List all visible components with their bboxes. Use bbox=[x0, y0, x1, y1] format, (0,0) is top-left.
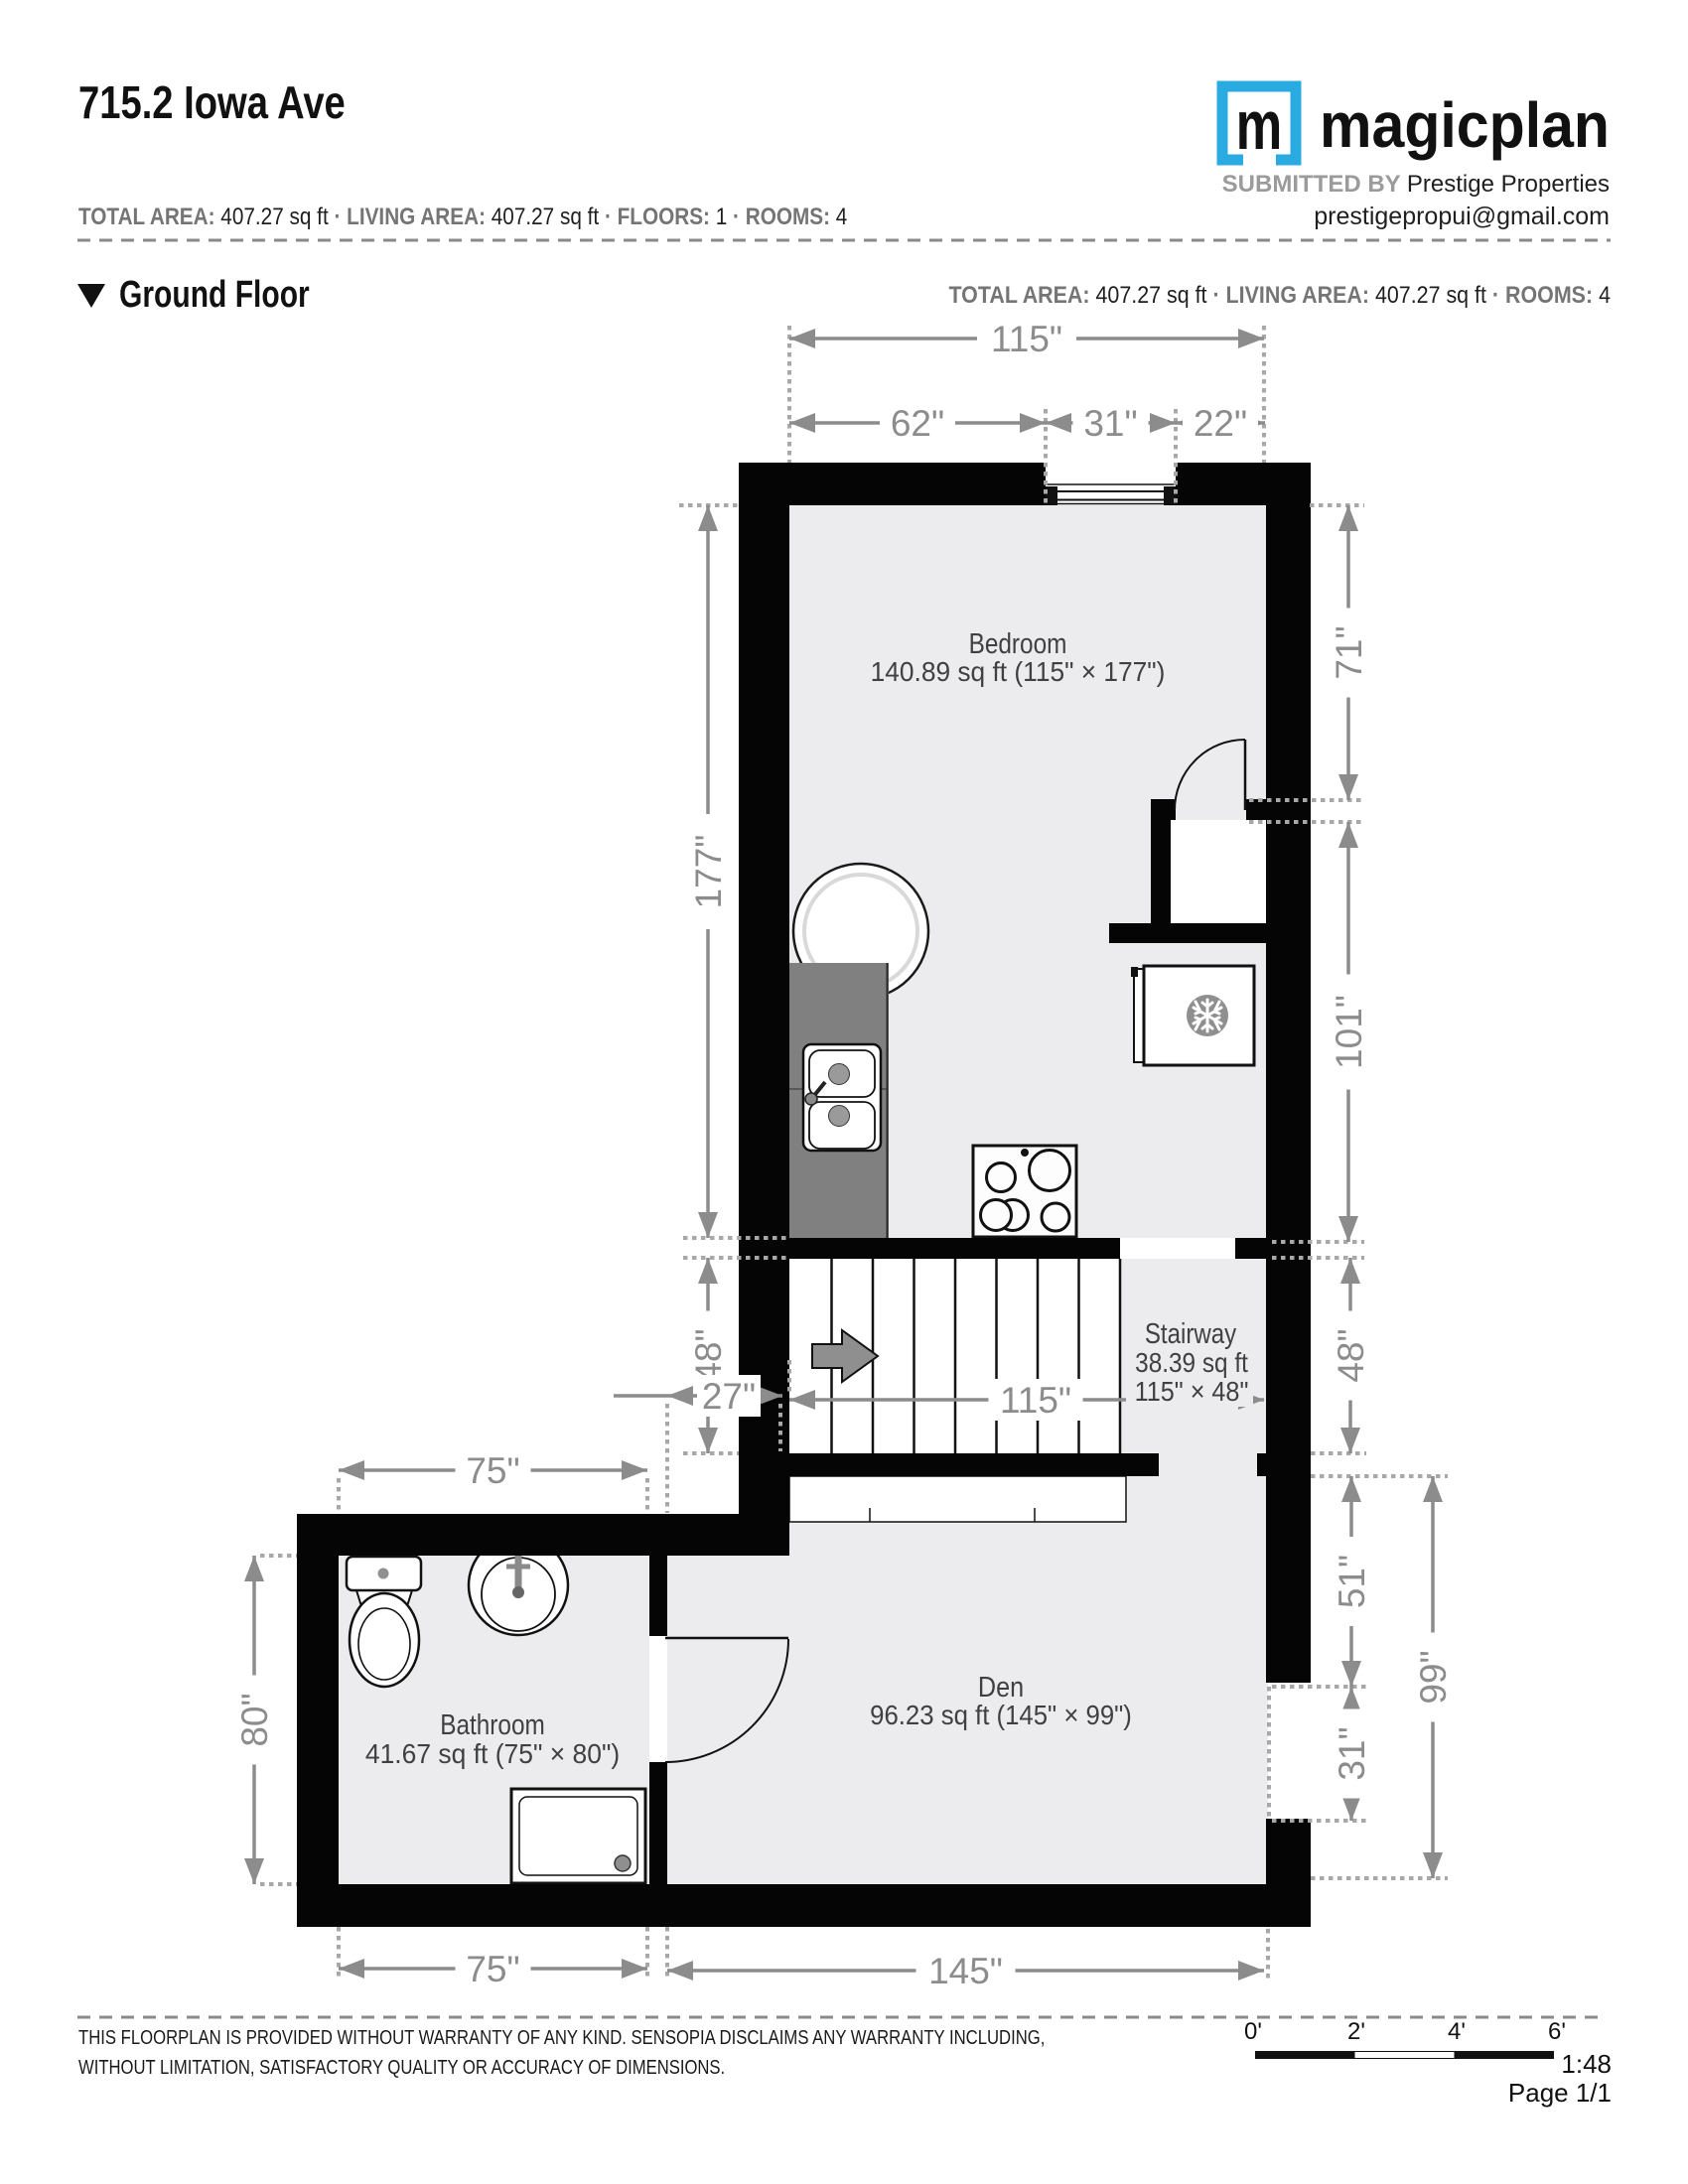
svg-text:115" × 48": 115" × 48" bbox=[1135, 1376, 1249, 1408]
svg-text:96.23 sq ft (145" × 99"): 96.23 sq ft (145" × 99") bbox=[870, 1700, 1132, 1730]
svg-text:Bathroom: Bathroom bbox=[440, 1708, 545, 1740]
svg-text:115": 115" bbox=[991, 319, 1062, 359]
svg-text:Stairway: Stairway bbox=[1145, 1317, 1237, 1350]
svg-text:27": 27" bbox=[702, 1376, 756, 1417]
svg-text:Ground Floor: Ground Floor bbox=[119, 274, 310, 316]
svg-text:177": 177" bbox=[688, 835, 729, 909]
svg-text:38.39 sq ft: 38.39 sq ft bbox=[1135, 1346, 1248, 1378]
svg-text:31": 31" bbox=[1083, 403, 1137, 444]
svg-text:31": 31" bbox=[1332, 1726, 1372, 1780]
svg-text:80": 80" bbox=[234, 1693, 275, 1746]
svg-text:THIS FLOORPLAN IS PROVIDED WIT: THIS FLOORPLAN IS PROVIDED WITHOUT WARRA… bbox=[78, 2026, 1045, 2049]
svg-text:prestigepropui@gmail.com: prestigepropui@gmail.com bbox=[1314, 203, 1610, 230]
svg-text:TOTAL AREA: 407.27 sq ft · LIV: TOTAL AREA: 407.27 sq ft · LIVING AREA: … bbox=[948, 281, 1611, 308]
svg-text:62": 62" bbox=[891, 403, 944, 444]
svg-text:4': 4' bbox=[1448, 2018, 1466, 2045]
svg-text:75": 75" bbox=[466, 1949, 519, 1989]
svg-text:6': 6' bbox=[1548, 2018, 1566, 2045]
svg-text:75": 75" bbox=[466, 1450, 519, 1491]
svg-text:Page 1/1: Page 1/1 bbox=[1508, 2078, 1612, 2108]
svg-text:145": 145" bbox=[928, 1951, 1003, 1991]
svg-text:magicplan: magicplan bbox=[1320, 89, 1610, 161]
svg-text:99": 99" bbox=[1413, 1650, 1454, 1704]
svg-text:2': 2' bbox=[1347, 2018, 1365, 2045]
svg-text:WITHOUT LIMITATION, SATISFACTO: WITHOUT LIMITATION, SATISFACTORY QUALITY… bbox=[78, 2056, 725, 2079]
svg-text:SUBMITTED BY Prestige Properti: SUBMITTED BY Prestige Properties bbox=[1222, 171, 1610, 198]
svg-text:715.2 Iowa Ave: 715.2 Iowa Ave bbox=[78, 77, 346, 128]
svg-text:0': 0' bbox=[1244, 2018, 1262, 2045]
svg-text:48": 48" bbox=[1331, 1328, 1371, 1382]
svg-text:41.67 sq ft (75" × 80"): 41.67 sq ft (75" × 80") bbox=[365, 1737, 620, 1769]
svg-text:51": 51" bbox=[1332, 1555, 1372, 1608]
svg-text:m: m bbox=[1236, 87, 1283, 165]
svg-text:TOTAL AREA: 407.27 sq ft · LIV: TOTAL AREA: 407.27 sq ft · LIVING AREA: … bbox=[78, 204, 847, 230]
svg-text:48": 48" bbox=[688, 1328, 729, 1382]
svg-text:71": 71" bbox=[1329, 625, 1369, 679]
svg-text:101": 101" bbox=[1329, 995, 1369, 1069]
svg-text:115": 115" bbox=[1000, 1380, 1071, 1421]
svg-text:140.89 sq ft (115" × 177"): 140.89 sq ft (115" × 177") bbox=[871, 655, 1166, 687]
svg-text:1:48: 1:48 bbox=[1561, 2049, 1612, 2079]
svg-text:Den: Den bbox=[978, 1670, 1024, 1703]
svg-text:22": 22" bbox=[1194, 403, 1247, 444]
